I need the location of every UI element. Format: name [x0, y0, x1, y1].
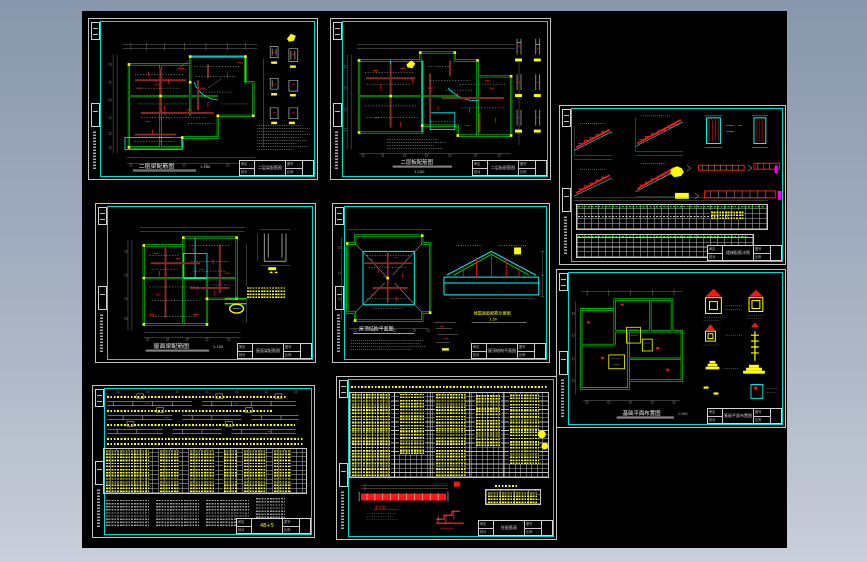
tb-drawing-title: 屋面梁配筋图 [256, 349, 280, 353]
title-block: 审定校对 柱配筋表 图号比例 [478, 520, 553, 536]
title-block: 审定校对 二层板配筋图 图号比例 [472, 160, 547, 176]
sheet-art: 二层梁配筋图 1:100 [89, 19, 317, 179]
sheet-scale: 1:100 [213, 345, 224, 349]
title-block: 审定校对 楼梯配筋详图 图号比例 [707, 245, 782, 261]
tb-scale-label: 比例 [520, 171, 526, 174]
beam-label-row [107, 443, 303, 445]
tb-drawing-title: 二层梁配筋图 [258, 166, 282, 170]
table-text-yellow [189, 450, 215, 492]
table-text-yellow [159, 450, 179, 492]
sheet-scale: 1:100 [200, 165, 211, 169]
tb-audit-label: 审定 [709, 411, 715, 414]
small-table-text [487, 491, 537, 503]
tb-drawing-title: 屋顶结构平面图 [488, 349, 516, 353]
sheet-2f-beam-plan[interactable]: 二层梁配筋图 1:100 审定校对 二层梁配筋图 图号比例 [88, 18, 318, 180]
sheet-art: 屋面梁配筋图 1:100 [96, 204, 315, 362]
tb-check-label: 校对 [238, 529, 244, 532]
tb-scale-label: 比例 [519, 354, 525, 357]
sheet-art: 基础平面布置图 1:100 [557, 270, 785, 427]
table-header-green-2 [578, 236, 748, 238]
tb-drawing-title: 柱配筋表 [501, 526, 517, 530]
tb-no-label: 图号 [285, 346, 291, 349]
sheet-roof-beam-plan[interactable]: 屋面梁配筋图 1:100 审定校对 屋面梁配筋图 图号比例 [95, 203, 316, 363]
sheet-column-schedule[interactable]: 梁详图 审定校对 柱配筋表 图号比例 [336, 376, 557, 540]
tb-check-label: 校对 [709, 419, 715, 422]
tb-scale-label: 比例 [287, 171, 293, 174]
beam-label-row [107, 410, 273, 412]
notes-paragraph [155, 498, 199, 526]
sheet-art: 梁详图 [337, 377, 556, 539]
tb-drawing-no: 4B+5 [260, 524, 274, 529]
tb-check-label: 校对 [709, 256, 715, 259]
tb-drawing-title: 基础平面布置图 [724, 414, 752, 418]
title-block: 审定校对 屋顶结构平面图 图号比例 [471, 343, 546, 359]
tb-scale-label: 比例 [526, 531, 532, 534]
sheet-roof-framing[interactable]: 屋顶结构平面图 坡屋面板配筋示意图 1:50 审定校对 屋顶结构平面图 图号比例 [332, 203, 550, 363]
sheet-title: 屋面梁配筋图 [154, 342, 190, 350]
tb-audit-label: 审定 [480, 523, 486, 526]
sheet-title: 二层板配筋图 [401, 158, 434, 166]
tb-scale-label: 比例 [755, 256, 761, 259]
sheet-scale: 1:100 [678, 412, 688, 416]
tb-scale-label: 比例 [755, 419, 761, 422]
beam-label-row [107, 396, 287, 398]
tb-audit-label: 审定 [238, 521, 244, 524]
table-text-yellow [223, 450, 237, 492]
tb-audit-label: 审定 [473, 346, 479, 349]
sheet-art: 二层板配筋图 1:100 [331, 19, 550, 179]
tb-scale-label: 比例 [285, 354, 291, 357]
table-header-green [578, 206, 764, 208]
yellow-note [246, 286, 286, 298]
small-table-label [495, 485, 517, 487]
tb-check-label: 校对 [480, 531, 486, 534]
tb-no-label: 图号 [755, 411, 761, 414]
table-text-yellow [243, 450, 265, 492]
tb-no-label: 图号 [284, 521, 290, 524]
sheet-title: 二层梁配筋图 [139, 162, 175, 170]
tb-no-label: 图号 [755, 248, 761, 251]
tb-drawing-title: 二层板配筋图 [491, 166, 515, 170]
roof-highlight-scale: 1:50 [489, 318, 497, 322]
sheet-foundation-plan[interactable]: 基础平面布置图 1:100 审定校对 基础平面布置图 图号比例 [556, 269, 786, 428]
tb-no-label: 图号 [287, 163, 293, 166]
beam-label-row [107, 438, 303, 440]
tb-audit-label: 审定 [239, 346, 245, 349]
title-block: 审定校对 屋面梁配筋图 图号比例 [237, 343, 312, 359]
yellow-note [710, 210, 744, 219]
title-block: 审定校对 基础平面布置图 图号比例 [707, 408, 782, 424]
tb-check-label: 校对 [474, 171, 480, 174]
beam-detail-label: 梁详图 [375, 504, 386, 509]
tb-no-label: 图号 [526, 523, 532, 526]
title-block: 审定校对 二层梁配筋图 图号比例 [239, 160, 314, 176]
roof-highlight-label: 坡屋面板配筋示意图 [474, 310, 511, 316]
tb-audit-label: 审定 [474, 163, 480, 166]
sheet-scale: 1:100 [414, 170, 425, 174]
drawing-canvas[interactable]: 二层梁配筋图 1:100 审定校对 二层梁配筋图 图号比例 [82, 11, 787, 548]
table-text-yellow [273, 450, 291, 492]
sheet-title: 基础平面布置图 [623, 409, 661, 417]
title-block: 审定校对 4B+5 图号比例 [236, 518, 311, 534]
notes-paragraph [255, 498, 285, 518]
tb-audit-label: 审定 [709, 248, 715, 251]
tb-no-label: 图号 [519, 346, 525, 349]
notes-paragraph [105, 498, 149, 526]
tb-drawing-title: 楼梯配筋详图 [726, 251, 750, 255]
tb-audit-label: 审定 [241, 163, 247, 166]
beam-label-row [107, 424, 295, 426]
tb-check-label: 校对 [239, 354, 245, 357]
sheet-art: 屋顶结构平面图 坡屋面板配筋示意图 1:50 [333, 204, 549, 362]
table-text-yellow [105, 450, 149, 492]
tb-scale-label: 比例 [284, 529, 290, 532]
table-row-text [578, 216, 728, 218]
sheet-2f-slab-plan[interactable]: 二层板配筋图 1:100 审定校对 二层板配筋图 图号比例 [330, 18, 551, 180]
sheet-beam-schedule[interactable]: 审定校对 4B+5 图号比例 [92, 385, 315, 538]
sheet-title: 屋顶结构平面图 [359, 325, 394, 332]
tb-check-label: 校对 [241, 171, 247, 174]
tb-no-label: 图号 [520, 163, 526, 166]
sheet-stair-details[interactable]: 审定校对 楼梯配筋详图 图号比例 [559, 105, 786, 265]
tb-check-label: 校对 [473, 354, 479, 357]
